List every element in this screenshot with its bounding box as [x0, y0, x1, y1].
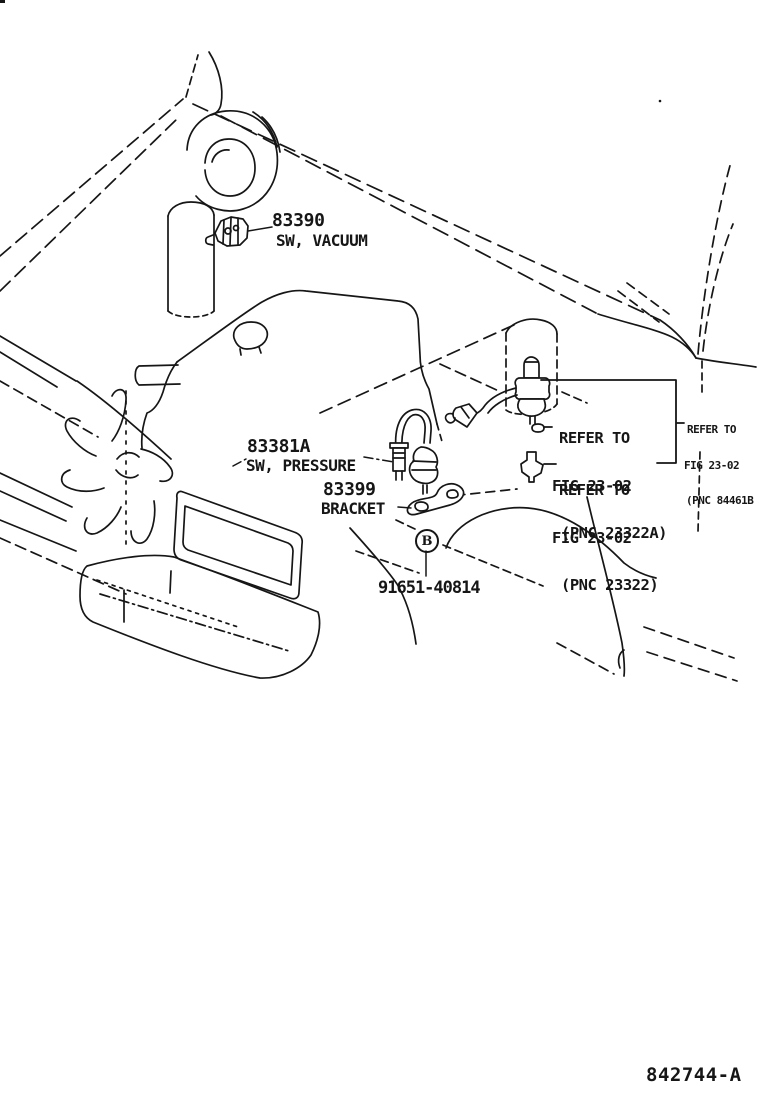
refer-note-pnc-84461b[interactable]: REFER TO FIG 23-02 (PNC 84461B	[683, 401, 753, 519]
part-name-sw-pressure: SW, PRESSURE	[246, 458, 356, 474]
part-name-bracket: BRACKET	[321, 501, 385, 517]
pulley-and-canister	[168, 111, 280, 317]
part-label-83399[interactable]: 83399	[323, 481, 376, 499]
part-label-91651-40814[interactable]: 91651-40814	[378, 580, 480, 597]
hood-cowl-lines	[0, 0, 756, 367]
fastener-marker-b[interactable]: B	[415, 529, 439, 553]
parts-diagram-canvas: 83390 SW, VACUUM 83381A SW, PRESSURE 833…	[0, 0, 760, 1112]
refer-line: (PNC 23322)	[561, 577, 658, 594]
part-label-83390[interactable]: 83390	[272, 212, 325, 230]
refer-line: REFER TO	[559, 482, 658, 499]
figure-code: 842744-A	[646, 1066, 742, 1085]
vacuum-switch	[206, 217, 272, 246]
refer-line: (PNC 84461B	[686, 494, 753, 508]
cooling-fan	[62, 390, 173, 549]
part-label-83381a[interactable]: 83381A	[247, 438, 310, 456]
filter-regulator-assembly	[446, 319, 557, 482]
grille-and-bumper	[0, 336, 320, 678]
engine-block	[135, 291, 443, 448]
refer-line: FIG 23-02	[552, 530, 658, 547]
refer-line: FIG 23-02	[684, 459, 753, 473]
part-name-sw-vacuum: SW, VACUUM	[276, 233, 367, 249]
refer-note-pnc-23322[interactable]: REFER TO FIG 23-02 (PNC 23322)	[552, 451, 658, 609]
refer-line: REFER TO	[687, 423, 753, 437]
refer-line: REFER TO	[559, 430, 667, 447]
